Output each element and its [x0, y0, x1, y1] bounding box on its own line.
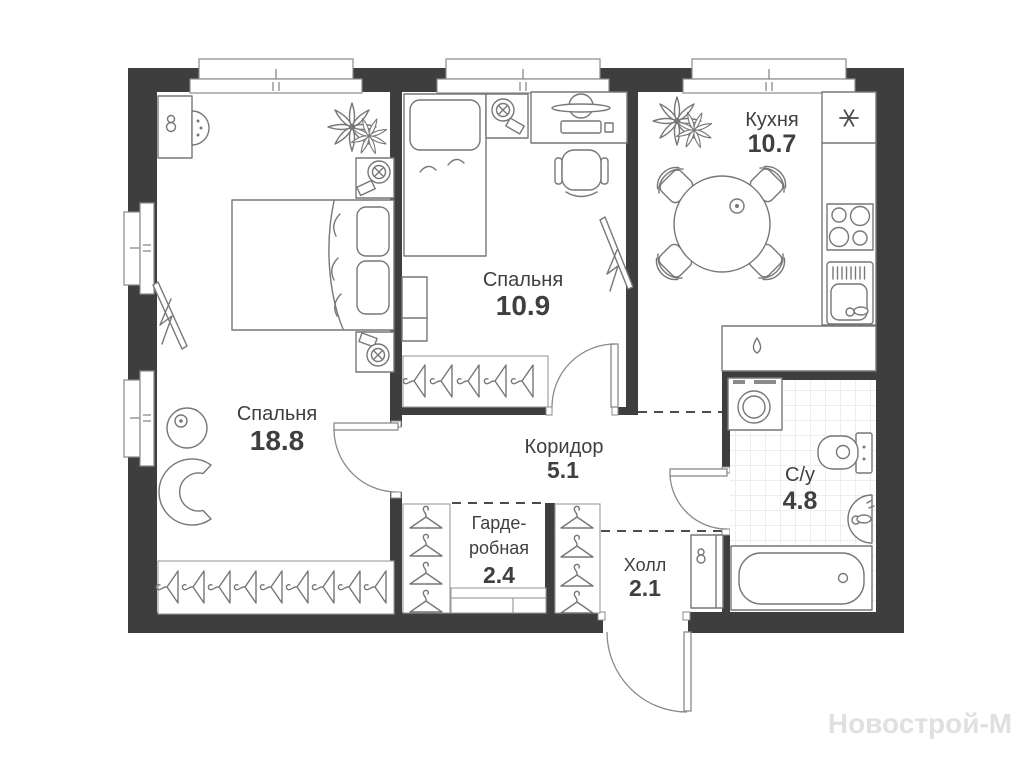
wall-corridor-top-left	[402, 407, 552, 415]
room-name: Холл	[624, 555, 666, 575]
hall-coat-rack	[555, 504, 600, 613]
wardrobe-closet-hangers	[156, 561, 394, 614]
plant-icon	[653, 97, 719, 155]
window-bedroom-small-top	[437, 59, 609, 93]
room-area: 10.9	[496, 290, 551, 321]
door-bedroom-small	[546, 344, 618, 415]
lamp-icon	[492, 99, 514, 121]
floor-plan: Спальня 18.8 Спальня 10.9 Кухня 10.7 Кор…	[0, 0, 1024, 768]
desk	[531, 92, 627, 143]
dining-table	[650, 160, 792, 286]
toilet	[818, 433, 872, 473]
watermark: Новострой-М	[828, 708, 1012, 739]
room-area: 10.7	[748, 130, 797, 158]
wardrobe-shelves	[451, 588, 546, 613]
dresser	[402, 277, 427, 341]
door-entrance	[598, 612, 691, 712]
label-bedroom-small: Спальня 10.9	[483, 269, 563, 321]
nightstand-bottom	[356, 332, 394, 372]
door-bathroom	[670, 467, 730, 535]
stove-icon	[827, 204, 873, 250]
door-bedroom-large	[334, 421, 401, 498]
bathtub	[731, 546, 872, 610]
washing-machine	[728, 378, 782, 430]
room-name: Спальня	[237, 403, 317, 425]
room-area: 5.1	[547, 457, 579, 483]
room-name-line2: робная	[469, 538, 529, 558]
window-bedroom-large-left-lower	[124, 371, 154, 466]
wall-right	[876, 68, 904, 633]
armchair	[159, 459, 211, 525]
office-chair	[555, 150, 608, 197]
makeup-table	[158, 96, 209, 158]
nightstand-top	[356, 158, 394, 198]
bedroom-small-furniture	[402, 92, 633, 407]
shoe-cabinet	[691, 535, 723, 608]
room-name: Спальня	[483, 269, 563, 291]
wardrobe-left-rack	[403, 504, 450, 613]
plant-icon	[328, 103, 394, 161]
floorplan-canvas: Спальня 18.8 Спальня 10.9 Кухня 10.7 Кор…	[0, 0, 1024, 768]
kitchen-counter-bottom	[722, 326, 876, 371]
room-area: 2.4	[483, 562, 515, 588]
window-bedroom-large-top	[190, 59, 362, 93]
label-bedroom-large: Спальня 18.8	[237, 403, 317, 456]
wall-kitchen-left	[626, 92, 638, 413]
double-bed	[232, 200, 394, 330]
label-kitchen: Кухня 10.7	[745, 109, 799, 158]
room-name: С/у	[785, 464, 815, 486]
wall-bottom-left	[128, 612, 603, 633]
label-corridor: Коридор 5.1	[525, 436, 604, 483]
window-bedroom-large-left-upper	[124, 203, 154, 294]
label-bathroom: С/у 4.8	[783, 464, 818, 515]
label-wardrobe: Гарде- робная 2.4	[469, 513, 529, 588]
room-name-line1: Гарде-	[472, 513, 527, 533]
room-area: 4.8	[783, 487, 818, 515]
wall-bottom-right	[688, 612, 904, 633]
leaning-mirror	[153, 282, 187, 349]
room-name: Кухня	[745, 109, 799, 131]
lamp-icon	[368, 161, 390, 183]
kitchen-sink	[827, 262, 873, 324]
hall-wardrobe-fixtures	[403, 504, 723, 613]
room-name: Коридор	[525, 436, 604, 458]
room-area: 2.1	[629, 575, 661, 601]
single-bed	[404, 94, 486, 256]
wall-left	[128, 68, 157, 633]
room-area: 18.8	[250, 425, 305, 456]
label-hall: Холл 2.1	[624, 555, 666, 601]
bedroom-large-furniture	[153, 96, 394, 614]
lamp-icon	[367, 344, 389, 366]
kitchen-counter-right	[822, 92, 876, 325]
window-kitchen-top	[683, 59, 855, 93]
side-table	[167, 408, 207, 448]
corner-nightstand	[486, 94, 528, 138]
closet-hangers	[403, 356, 548, 407]
